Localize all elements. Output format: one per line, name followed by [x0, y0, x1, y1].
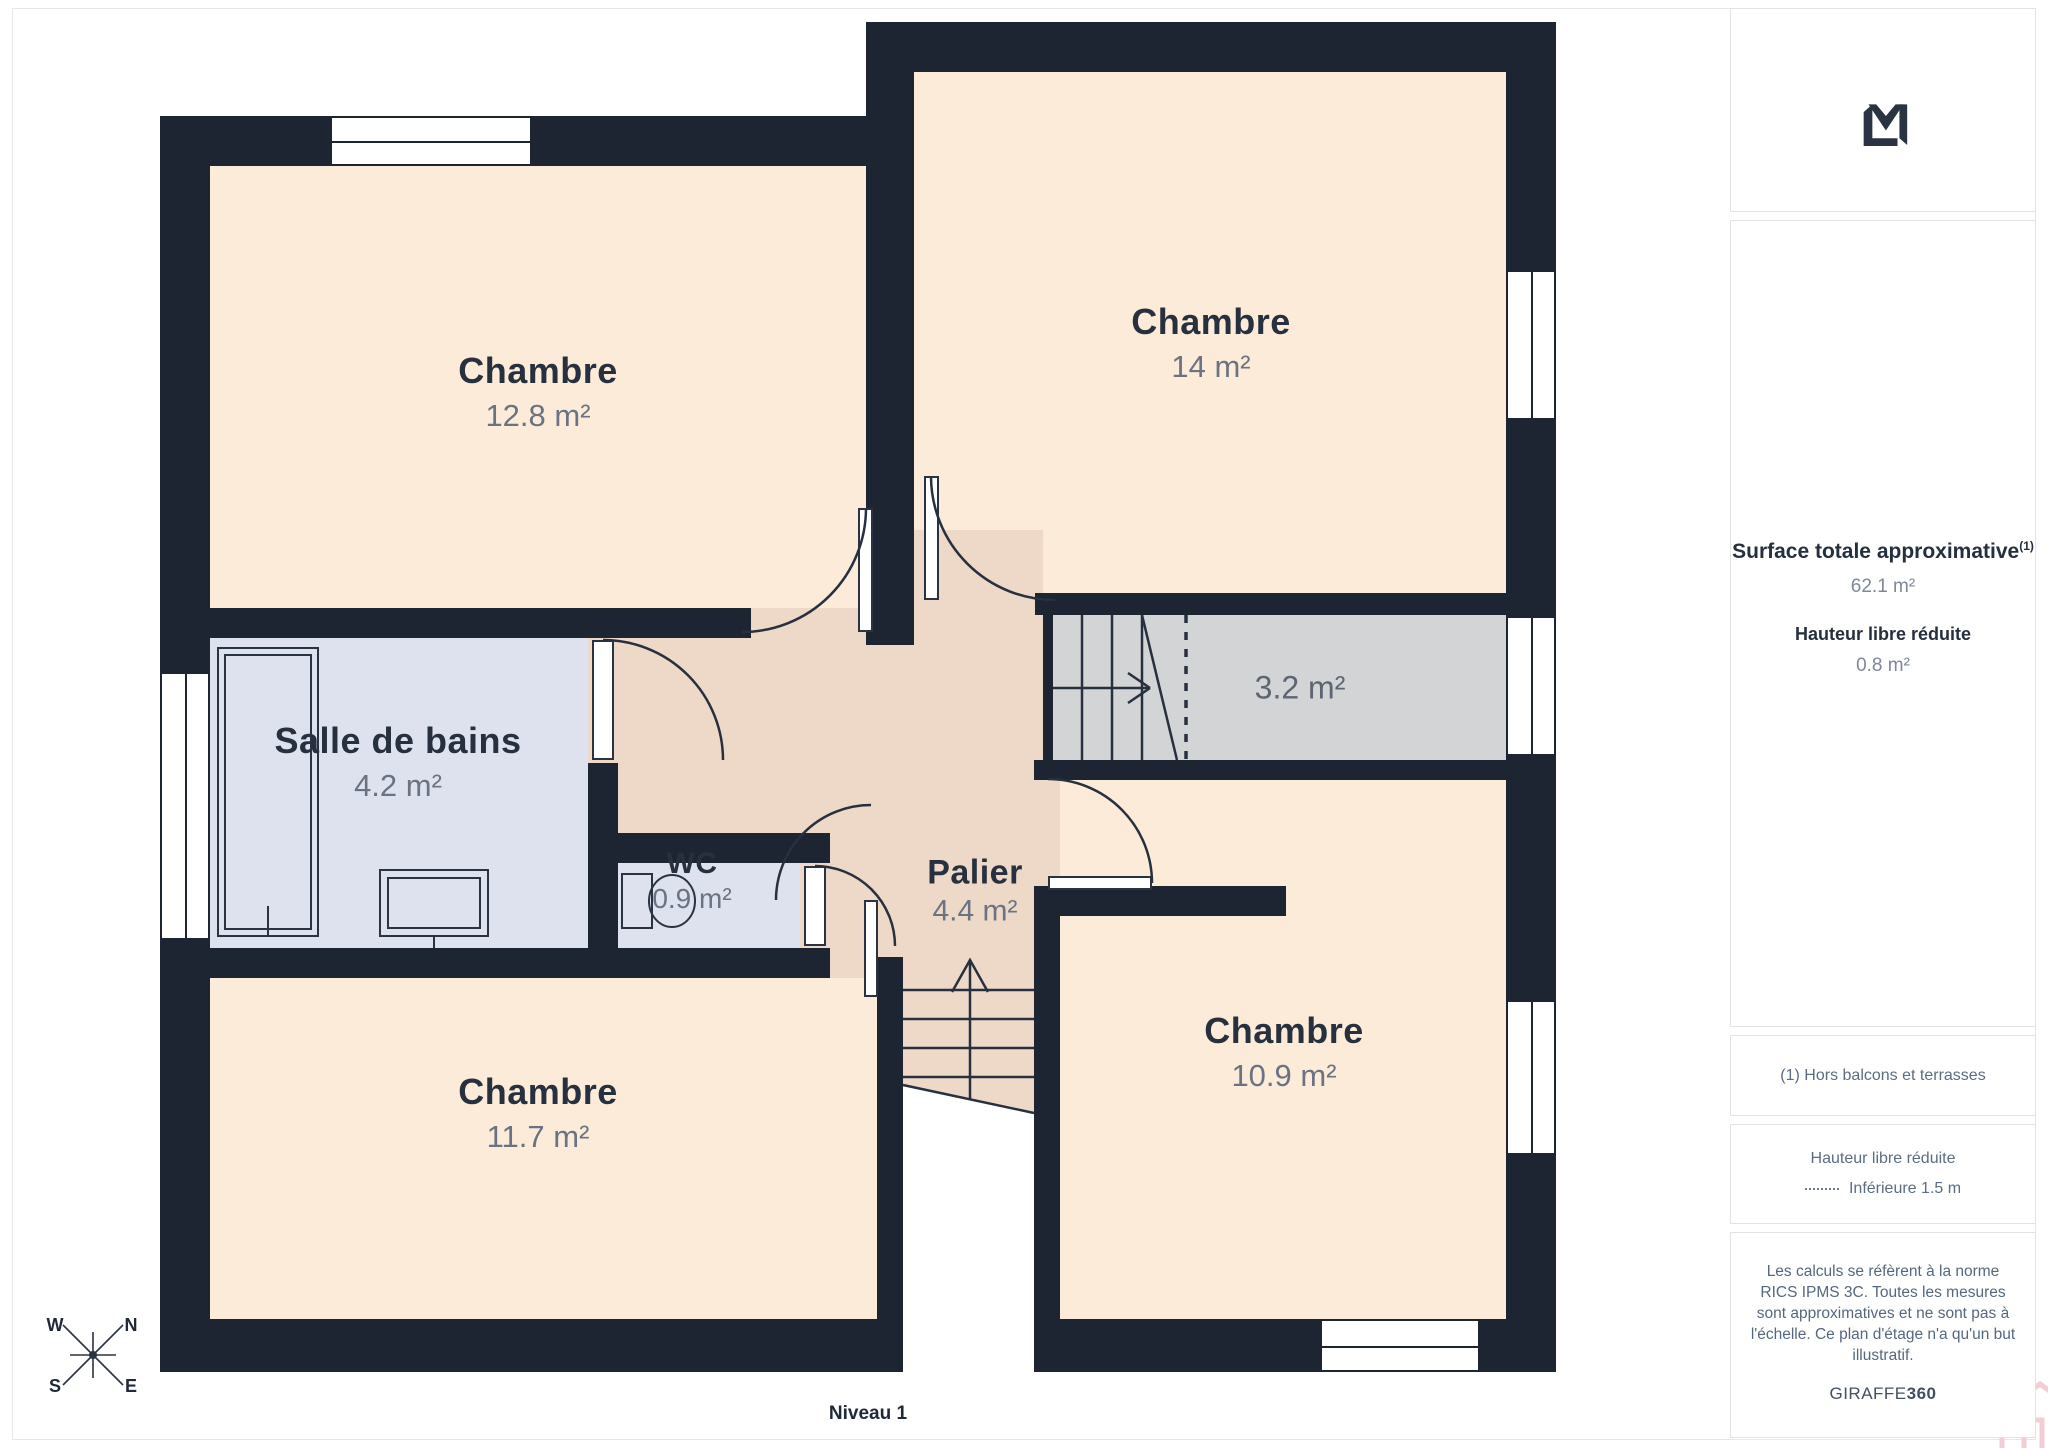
note-text: (1) Hors balcons et terrasses	[1780, 1067, 1985, 1085]
room-name: Palier	[927, 854, 1023, 893]
door-leaf	[1048, 876, 1152, 890]
room-label-salle-de-bains: Salle de bains 4.2 m²	[274, 720, 521, 804]
level-label: Niveau 1	[829, 1403, 907, 1425]
surface-total-value: 62.1 m²	[1731, 576, 2035, 598]
disclaimer-text: Les calculs se réfèrent à la norme RICS …	[1747, 1261, 2019, 1366]
wall	[1043, 615, 1053, 760]
room-name: Chambre	[1131, 301, 1291, 343]
sidebar-logo-box	[1730, 8, 2036, 212]
wall	[1034, 760, 1506, 780]
window	[330, 116, 532, 166]
room-label-palier: Palier 4.4 m²	[927, 854, 1023, 929]
door-leaf	[858, 508, 873, 632]
legend-item: Inférieure 1.5 m	[1805, 1180, 1961, 1198]
room-area: 10.9 m²	[1204, 1058, 1364, 1094]
sidebar-legend-box: Hauteur libre réduite Inférieure 1.5 m	[1730, 1124, 2036, 1224]
wall	[160, 1319, 877, 1372]
stairwell-fill	[903, 957, 1034, 1113]
window	[1506, 1000, 1556, 1155]
hall-fill	[877, 615, 914, 957]
compass-icon: W N S E	[47, 1315, 138, 1396]
room-label-chambre-14: Chambre 14 m²	[1131, 301, 1291, 385]
window	[1506, 616, 1556, 756]
room-area: 0.9 m²	[652, 883, 731, 915]
room-area: 11.7 m²	[458, 1119, 618, 1155]
wall	[877, 957, 903, 1372]
legend-title: Hauteur libre réduite	[1811, 1150, 1956, 1168]
door-leaf	[592, 640, 614, 760]
sidebar-summary-box: Surface totale approximative(1) 62.1 m² …	[1730, 220, 2036, 1027]
room-name: Chambre	[458, 350, 618, 392]
sidebar-note-box: (1) Hors balcons et terrasses	[1730, 1035, 2036, 1116]
room-name: Chambre	[458, 1071, 618, 1113]
compass-e: E	[125, 1376, 137, 1396]
wall	[1034, 886, 1060, 1372]
room-label-chambre-11-7: Chambre 11.7 m²	[458, 1071, 618, 1155]
hall-fill	[588, 638, 877, 833]
room-area: 14 m²	[1131, 349, 1291, 385]
dotted-line-sample	[1805, 1188, 1839, 1190]
stairs-area-label: 3.2 m²	[1255, 670, 1346, 707]
surface-total-title: Surface totale approximative(1)	[1731, 539, 2035, 564]
wall	[160, 116, 914, 166]
compass-w: W	[47, 1315, 64, 1335]
room-name: Salle de bains	[274, 720, 521, 762]
page: Chambre 12.8 m² Chambre 14 m² Salle de b…	[0, 0, 2048, 1448]
room-name: Chambre	[1204, 1010, 1364, 1052]
doorway-fill	[751, 608, 866, 638]
brand-logo: GIRAFFE360	[1731, 1384, 2035, 1404]
window	[1506, 270, 1556, 420]
reduced-height-title: Hauteur libre réduite	[1731, 624, 2035, 645]
room-label-chambre-12-8: Chambre 12.8 m²	[458, 350, 618, 434]
room-name: WC	[652, 847, 731, 881]
compass-s: S	[49, 1376, 61, 1396]
wall	[1060, 886, 1286, 916]
room-area: 12.8 m²	[458, 398, 618, 434]
wall	[160, 948, 830, 978]
wall	[1035, 593, 1506, 615]
door-leaf	[804, 866, 826, 946]
window	[1320, 1319, 1480, 1372]
room-label-wc: WC 0.9 m²	[652, 847, 731, 915]
room-area: 4.2 m²	[274, 768, 521, 804]
reduced-height-value: 0.8 m²	[1731, 655, 2035, 677]
compass-n: N	[125, 1315, 138, 1335]
room-area: 4.4 m²	[927, 895, 1023, 929]
window	[160, 672, 210, 940]
wall	[1060, 1319, 1556, 1372]
logo-icon	[1854, 85, 1912, 149]
sidebar-disclaimer-box: Les calculs se réfèrent à la norme RICS …	[1730, 1232, 2036, 1438]
wall	[210, 608, 751, 638]
door-leaf	[864, 900, 878, 997]
door-leaf	[924, 476, 939, 600]
wall	[866, 22, 914, 645]
wall	[866, 22, 1556, 72]
doorway-fill	[1034, 780, 1060, 886]
room-label-chambre-10-9: Chambre 10.9 m²	[1204, 1010, 1364, 1094]
